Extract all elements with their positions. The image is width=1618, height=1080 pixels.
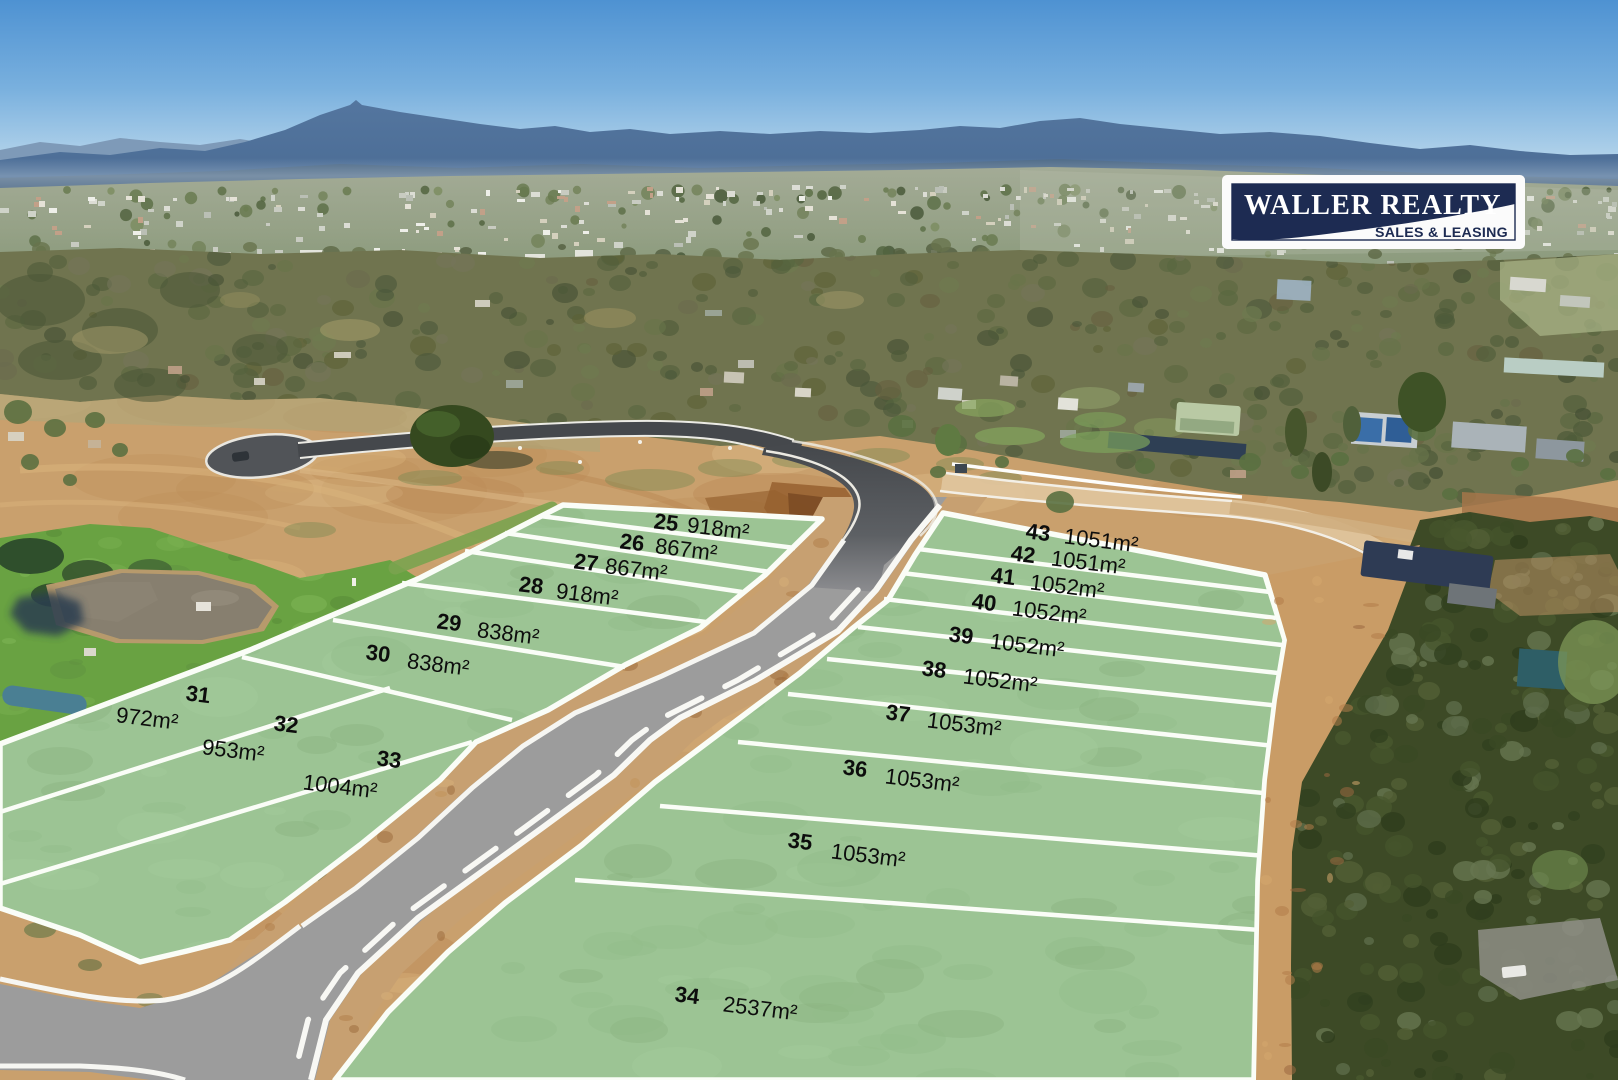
svg-text:25: 25 bbox=[653, 508, 680, 536]
svg-text:28: 28 bbox=[518, 571, 545, 599]
svg-text:38: 38 bbox=[921, 655, 948, 683]
svg-text:29: 29 bbox=[436, 608, 463, 636]
svg-text:36: 36 bbox=[842, 754, 869, 782]
svg-text:42: 42 bbox=[1010, 540, 1037, 568]
svg-text:32: 32 bbox=[273, 710, 300, 738]
svg-text:43: 43 bbox=[1025, 518, 1052, 546]
svg-text:30: 30 bbox=[365, 639, 392, 667]
svg-text:31: 31 bbox=[185, 680, 212, 708]
svg-text:39: 39 bbox=[948, 621, 975, 649]
svg-text:27: 27 bbox=[573, 548, 600, 576]
svg-text:34: 34 bbox=[674, 981, 702, 1009]
svg-text:41: 41 bbox=[990, 562, 1017, 590]
svg-text:26: 26 bbox=[619, 528, 646, 556]
svg-text:37: 37 bbox=[885, 699, 912, 727]
svg-text:35: 35 bbox=[787, 827, 814, 855]
svg-text:SALES & LEASING: SALES & LEASING bbox=[1375, 225, 1508, 241]
svg-text:40: 40 bbox=[971, 588, 998, 616]
svg-text:33: 33 bbox=[376, 745, 403, 773]
svg-text:WALLER REALTY: WALLER REALTY bbox=[1244, 190, 1502, 221]
